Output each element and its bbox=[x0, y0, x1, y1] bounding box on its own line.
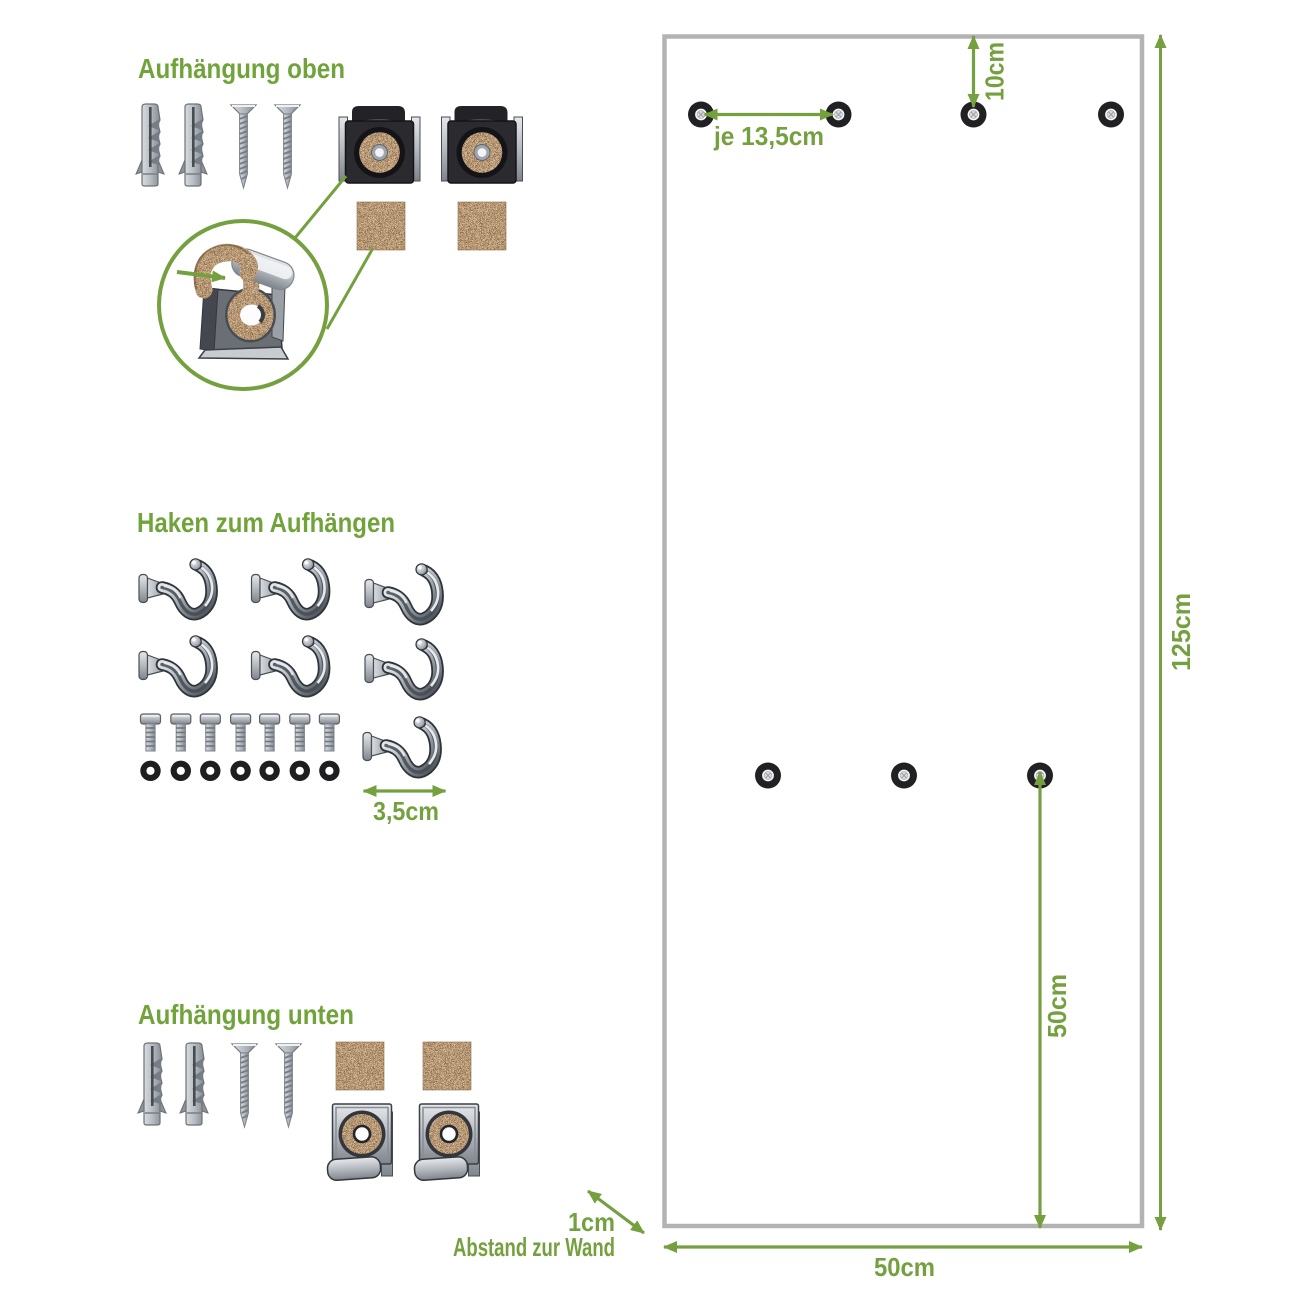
svg-text:3,5cm: 3,5cm bbox=[373, 796, 439, 826]
svg-text:125cm: 125cm bbox=[1166, 593, 1196, 671]
svg-text:Haken zum Aufhängen: Haken zum Aufhängen bbox=[137, 507, 395, 538]
svg-text:je 13,5cm: je 13,5cm bbox=[713, 121, 824, 151]
svg-text:10cm: 10cm bbox=[980, 42, 1010, 101]
svg-text:50cm: 50cm bbox=[1042, 974, 1072, 1038]
svg-text:Abstand zur Wand: Abstand zur Wand bbox=[453, 1232, 615, 1262]
svg-text:Aufhängung unten: Aufhängung unten bbox=[138, 999, 354, 1030]
svg-text:50cm: 50cm bbox=[874, 1252, 935, 1282]
svg-text:Aufhängung oben: Aufhängung oben bbox=[138, 53, 345, 84]
